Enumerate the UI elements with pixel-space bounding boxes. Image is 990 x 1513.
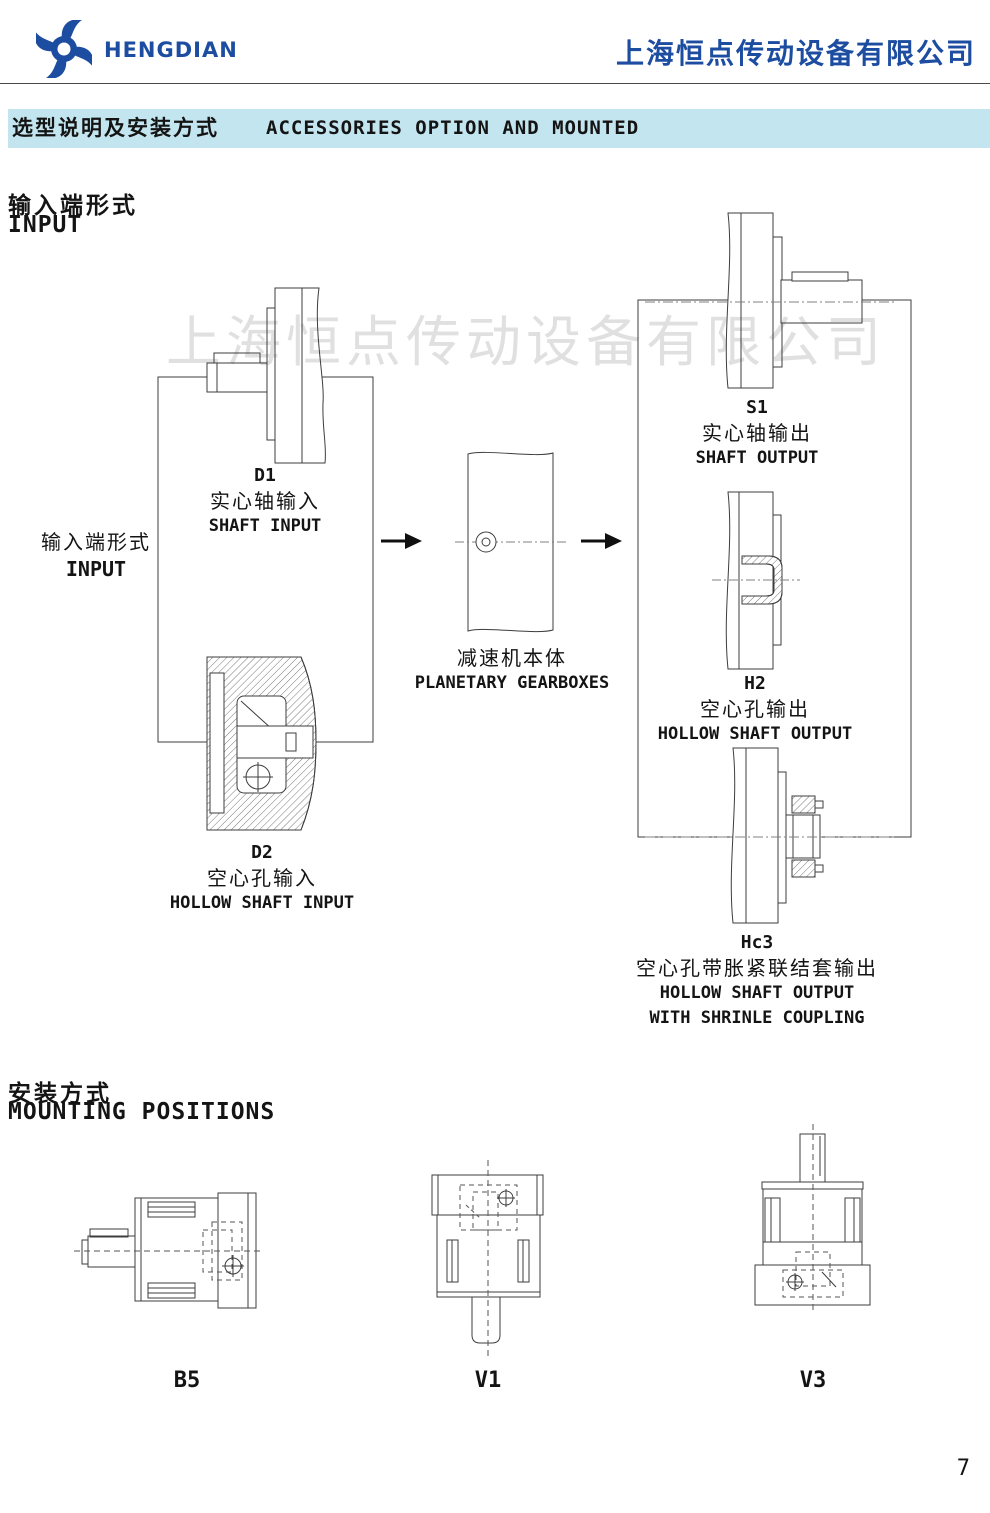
title-bar-en: ACCESSORIES OPTION AND MOUNTED [266,109,639,148]
input-side-label-zh: 输入端形式 [41,529,151,556]
page-number: 7 [957,1456,970,1481]
title-bar-zh: 选型说明及安装方式 [12,109,219,148]
header-divider [0,83,990,84]
d2-zh: 空心孔输入 [170,865,354,891]
hc3-en2: WITH SHRINLE COUPLING [636,1006,878,1031]
b5-mounting-drawing [74,1193,264,1308]
v3-label: V3 [800,1368,827,1393]
hc3-label-block: Hc3 空心孔带胀紧联结套输出 HOLLOW SHAFT OUTPUT WITH… [636,930,878,1031]
d1-label-block: D1 实心轴输入 SHAFT INPUT [209,463,322,539]
v1-mounting-drawing [432,1160,543,1356]
h2-hollow-output-drawing [712,492,800,669]
gearbox-label-block: 减速机本体 PLANETARY GEARBOXES [415,645,609,696]
gearbox-body-drawing [455,452,568,631]
s1-en: SHAFT OUTPUT [696,446,819,471]
technical-drawings-layer [0,0,990,1513]
hc3-code: Hc3 [636,930,878,955]
brand-name: HENGDIAN [104,38,238,62]
d2-en: HOLLOW SHAFT INPUT [170,891,354,916]
h2-en: HOLLOW SHAFT OUTPUT [658,722,852,747]
d1-shaft-input-drawing [207,288,325,463]
s1-zh: 实心轴输出 [696,420,819,446]
d2-label-block: D2 空心孔输入 HOLLOW SHAFT INPUT [170,840,354,916]
input-side-label: 输入端形式 INPUT [41,529,151,582]
v3-mounting-drawing [755,1124,870,1313]
section-title-bar: 选型说明及安装方式 ACCESSORIES OPTION AND MOUNTED [8,109,990,148]
mounting-heading-en: MOUNTING POSITIONS [8,1099,275,1125]
gearbox-en: PLANETARY GEARBOXES [415,671,609,696]
v1-label: V1 [475,1368,502,1393]
catalog-page: { "header": { "brand": "HENGDIAN", "comp… [0,0,990,1513]
d2-hollow-input-drawing [207,657,316,830]
d1-en: SHAFT INPUT [209,514,322,539]
d1-zh: 实心轴输入 [209,488,322,514]
input-heading-en: INPUT [8,212,82,238]
hengdian-pinwheel-logo-icon [36,20,92,78]
gearbox-zh: 减速机本体 [415,645,609,671]
input-side-label-en: INPUT [41,556,151,582]
company-name: 上海恒点传动设备有限公司 [616,32,976,72]
flow-arrow-left [381,533,422,549]
flow-arrow-right [581,533,622,549]
h2-zh: 空心孔输出 [658,696,852,722]
s1-code: S1 [696,395,819,420]
b5-label: B5 [174,1368,201,1393]
h2-code: H2 [658,671,852,696]
hc3-shrink-coupling-drawing [645,748,895,923]
s1-label-block: S1 实心轴输出 SHAFT OUTPUT [696,395,819,471]
hc3-zh: 空心孔带胀紧联结套输出 [636,955,878,981]
hc3-en1: HOLLOW SHAFT OUTPUT [636,981,878,1006]
h2-label-block: H2 空心孔输出 HOLLOW SHAFT OUTPUT [658,671,852,747]
d2-code: D2 [170,840,354,865]
d1-code: D1 [209,463,322,488]
